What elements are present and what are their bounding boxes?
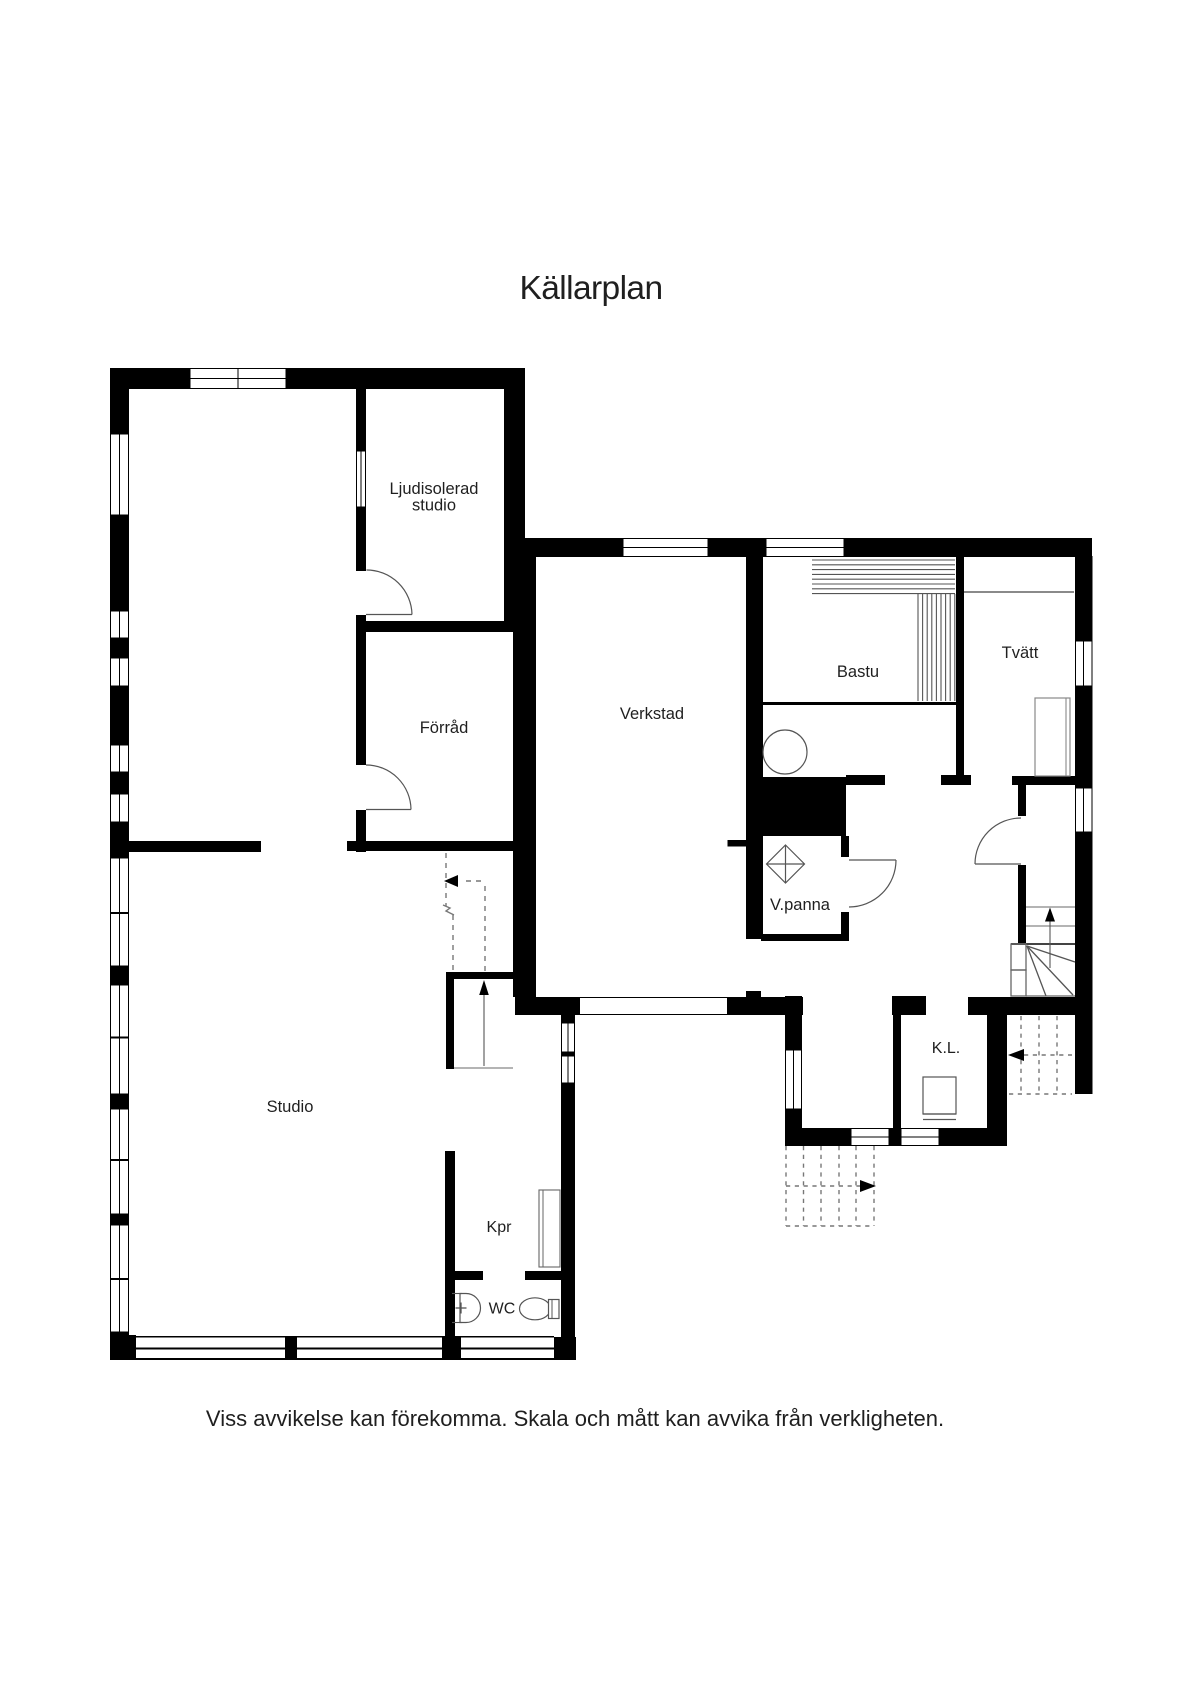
svg-text:Verkstad: Verkstad xyxy=(620,705,684,723)
svg-text:WC: WC xyxy=(489,1301,516,1318)
svg-text:Ljudisolerad: Ljudisolerad xyxy=(390,480,479,498)
svg-text:Förråd: Förråd xyxy=(420,719,469,737)
svg-text:Viss avvikelse kan förekomma.: Viss avvikelse kan förekomma. Skala och … xyxy=(206,1406,944,1431)
svg-text:studio: studio xyxy=(412,497,456,515)
svg-text:Kpr: Kpr xyxy=(487,1219,513,1236)
svg-text:Källarplan: Källarplan xyxy=(520,270,663,307)
svg-text:K.L.: K.L. xyxy=(932,1040,960,1057)
svg-text:Bastu: Bastu xyxy=(837,663,879,681)
svg-text:Studio: Studio xyxy=(267,1098,314,1116)
svg-text:Tvätt: Tvätt xyxy=(1002,644,1039,662)
svg-text:V.panna: V.panna xyxy=(770,896,831,914)
